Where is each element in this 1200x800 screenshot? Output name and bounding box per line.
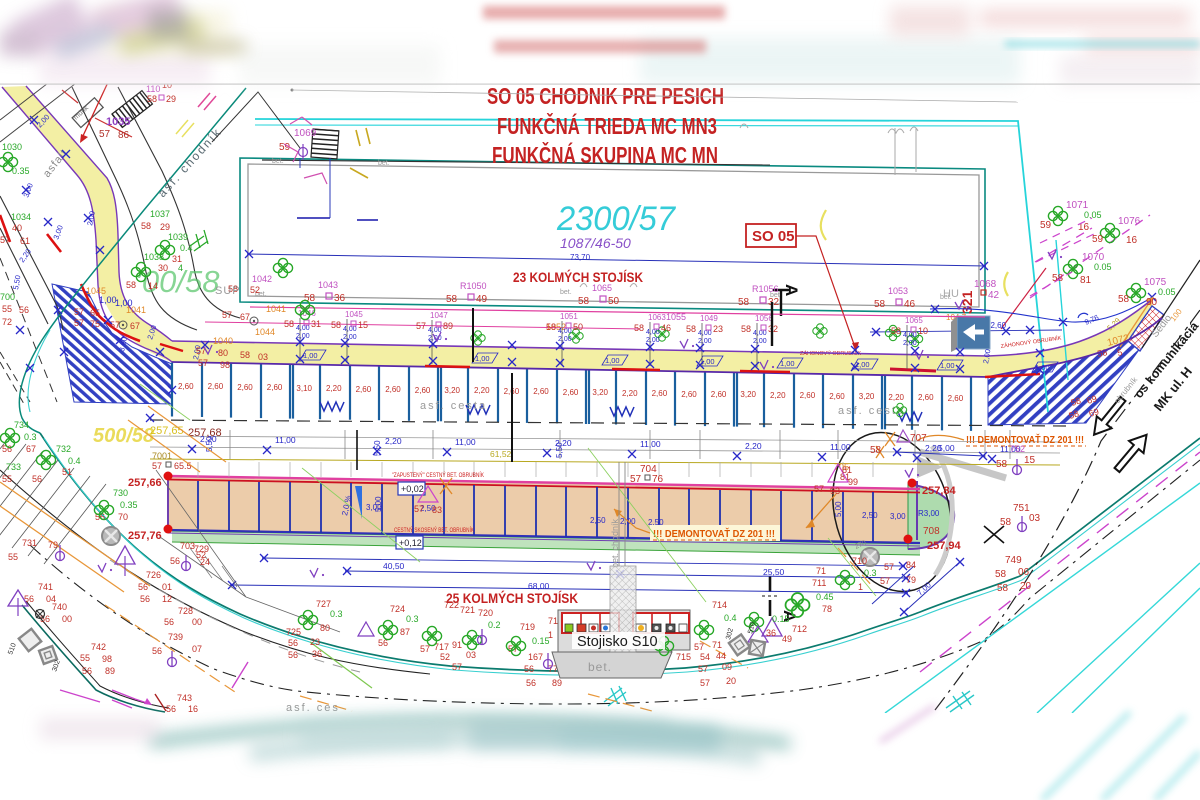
- svg-text:2,50: 2,50: [862, 511, 878, 520]
- svg-text:1069: 1069: [294, 128, 317, 139]
- svg-text:739: 739: [168, 632, 183, 642]
- svg-text:80: 80: [218, 348, 228, 358]
- svg-text:56: 56: [164, 617, 174, 627]
- svg-text:10: 10: [918, 326, 928, 336]
- svg-text:58: 58: [147, 94, 157, 104]
- svg-text:bet.: bet.: [272, 158, 284, 165]
- svg-text:23: 23: [310, 637, 320, 647]
- svg-text:724: 724: [390, 604, 405, 614]
- svg-text:1087/46-50: 1087/46-50: [560, 235, 631, 251]
- svg-text:751: 751: [1013, 503, 1030, 514]
- svg-text:56: 56: [19, 305, 29, 315]
- svg-text:36: 36: [334, 293, 346, 304]
- svg-text:1,00: 1,00: [303, 351, 318, 360]
- svg-text:56: 56: [138, 582, 148, 592]
- svg-text:bet.: bet.: [560, 289, 572, 296]
- svg-text:SO 05: SO 05: [752, 228, 795, 245]
- svg-text:710: 710: [852, 556, 867, 566]
- svg-text:257,76: 257,76: [128, 530, 162, 542]
- svg-text:+0,02: +0,02: [401, 484, 424, 494]
- svg-text:56: 56: [82, 666, 92, 676]
- svg-text:79: 79: [906, 575, 916, 585]
- svg-text:4,00: 4,00: [698, 330, 712, 337]
- svg-text:55: 55: [80, 653, 90, 663]
- svg-text:89: 89: [443, 321, 453, 331]
- svg-text:67: 67: [240, 312, 250, 322]
- svg-text:16: 16: [188, 704, 198, 714]
- svg-text:bet.: bet.: [378, 160, 390, 167]
- svg-text:725: 725: [286, 627, 301, 637]
- svg-text:70: 70: [118, 512, 128, 522]
- svg-text:1056: 1056: [755, 314, 773, 323]
- svg-text:56: 56: [152, 646, 162, 656]
- svg-text:65: 65: [90, 308, 100, 318]
- svg-text:57: 57: [222, 310, 232, 320]
- svg-text:58: 58: [634, 323, 644, 333]
- svg-text:R3,00: R3,00: [918, 509, 940, 518]
- svg-text:87: 87: [400, 627, 410, 637]
- svg-text:0.3: 0.3: [330, 609, 343, 619]
- svg-text:2,60: 2,60: [533, 387, 549, 396]
- svg-text:79: 79: [48, 540, 58, 550]
- svg-text:58: 58: [331, 320, 341, 330]
- svg-text:asf. ces: asf. ces: [286, 702, 340, 714]
- svg-text:3,20: 3,20: [740, 390, 756, 399]
- svg-text:84: 84: [906, 560, 916, 570]
- svg-text:78: 78: [822, 604, 832, 614]
- svg-text:1: 1: [548, 630, 553, 640]
- svg-text:2,60: 2,60: [918, 393, 934, 402]
- svg-text:58: 58: [141, 221, 151, 231]
- svg-text:0.3: 0.3: [406, 614, 419, 624]
- svg-text:57: 57: [420, 644, 430, 654]
- svg-text:57: 57: [880, 576, 890, 586]
- svg-text:2,00: 2,00: [753, 338, 767, 345]
- svg-text:1055: 1055: [666, 312, 686, 322]
- svg-text:36: 36: [766, 628, 776, 638]
- svg-text:50: 50: [608, 296, 620, 307]
- svg-text:09: 09: [722, 662, 732, 672]
- svg-text:730: 730: [113, 488, 128, 498]
- svg-text:1063: 1063: [648, 313, 666, 322]
- svg-text:0.3: 0.3: [864, 568, 877, 578]
- svg-text:2,20: 2,20: [474, 386, 490, 395]
- svg-text:83: 83: [432, 505, 442, 515]
- svg-text:3,20: 3,20: [444, 386, 460, 395]
- svg-text:06: 06: [1018, 567, 1030, 578]
- svg-text:12: 12: [162, 594, 172, 604]
- svg-text:56: 56: [2, 444, 12, 454]
- svg-text:71: 71: [816, 566, 826, 576]
- svg-text:500/58: 500/58: [93, 425, 155, 447]
- svg-text:03: 03: [466, 650, 476, 660]
- svg-text:1047: 1047: [430, 311, 448, 320]
- svg-text:2,20: 2,20: [326, 384, 342, 393]
- svg-text:2,60: 2,60: [267, 383, 283, 392]
- svg-text:1: 1: [858, 582, 863, 592]
- svg-text:2,00: 2,00: [646, 337, 660, 344]
- svg-text:2,60: 2,60: [800, 391, 816, 400]
- svg-text:707: 707: [910, 433, 927, 444]
- svg-text:57: 57: [630, 474, 642, 485]
- svg-text:58: 58: [741, 324, 751, 334]
- svg-text:99: 99: [848, 477, 858, 487]
- svg-text:733: 733: [6, 462, 21, 472]
- svg-text:56: 56: [170, 556, 180, 566]
- svg-text:0.35: 0.35: [12, 166, 30, 176]
- svg-text:58: 58: [304, 293, 316, 304]
- svg-text:2,00: 2,00: [343, 334, 357, 341]
- svg-text:31: 31: [311, 319, 321, 329]
- svg-text:01: 01: [162, 582, 172, 592]
- svg-text:0.15: 0.15: [772, 614, 790, 624]
- svg-text:0.4: 0.4: [724, 613, 737, 623]
- svg-text:56: 56: [526, 678, 536, 688]
- svg-text:61,52: 61,52: [490, 449, 512, 459]
- svg-text:57: 57: [0, 235, 10, 245]
- svg-text:1044: 1044: [255, 327, 275, 337]
- svg-text:57: 57: [416, 321, 426, 331]
- svg-text:1,00: 1,00: [780, 359, 795, 368]
- svg-text:56: 56: [32, 474, 42, 484]
- svg-text:58: 58: [1118, 294, 1130, 305]
- svg-text:4,00: 4,00: [558, 328, 572, 335]
- svg-text:67: 67: [130, 321, 140, 331]
- svg-text:1065: 1065: [905, 316, 923, 325]
- svg-text:11,00: 11,00: [275, 435, 296, 445]
- svg-text:72: 72: [2, 317, 12, 327]
- svg-text:2,20: 2,20: [888, 393, 904, 402]
- svg-text:52: 52: [440, 652, 450, 662]
- svg-text:732: 732: [56, 444, 71, 454]
- svg-text:58: 58: [686, 324, 696, 334]
- svg-text:4: 4: [178, 263, 183, 273]
- svg-text:2,00: 2,00: [558, 336, 572, 343]
- svg-text:58: 58: [1052, 273, 1064, 284]
- svg-text:257,84: 257,84: [922, 485, 957, 497]
- svg-text:55: 55: [8, 552, 18, 562]
- svg-text:57: 57: [99, 129, 111, 140]
- svg-text:0.4: 0.4: [180, 243, 193, 253]
- svg-text:HU: HU: [943, 288, 959, 300]
- svg-text:89: 89: [552, 678, 562, 688]
- svg-text:57: 57: [700, 678, 710, 688]
- svg-text:2,60: 2,60: [415, 386, 431, 395]
- svg-text:0.4: 0.4: [68, 456, 81, 466]
- svg-text:46: 46: [904, 299, 916, 310]
- svg-text:257,65: 257,65: [150, 425, 184, 437]
- svg-text:1053: 1053: [888, 286, 908, 296]
- svg-text:5,00: 5,00: [938, 443, 955, 453]
- svg-text:00: 00: [192, 617, 202, 627]
- svg-text:61: 61: [20, 236, 30, 246]
- svg-text:720: 720: [478, 608, 493, 618]
- svg-text:36: 36: [312, 649, 322, 659]
- svg-text:1034: 1034: [11, 212, 31, 222]
- svg-text:23 KOLMÝCH STOJÍSK: 23 KOLMÝCH STOJÍSK: [513, 268, 643, 285]
- svg-text:1040: 1040: [213, 336, 233, 346]
- svg-text:1051: 1051: [560, 312, 578, 321]
- svg-text:"ZAPUSTENÝ" CESTNÝ BET. OBRUBN: "ZAPUSTENÝ" CESTNÝ BET. OBRUBNÍK: [392, 470, 484, 479]
- svg-text:A: A: [782, 284, 801, 296]
- svg-text:0.05: 0.05: [1094, 262, 1112, 272]
- svg-text:752: 752: [1010, 444, 1025, 454]
- svg-text:57: 57: [698, 664, 708, 674]
- svg-text:2,60: 2,60: [948, 394, 964, 403]
- svg-text:25 KOLMÝCH STOJÍSK: 25 KOLMÝCH STOJÍSK: [446, 589, 578, 606]
- svg-text:98: 98: [220, 360, 230, 370]
- svg-text:1049: 1049: [700, 314, 718, 323]
- svg-text:749: 749: [1005, 555, 1022, 566]
- svg-text:CESTNÝ SKOSENÝ BET. OBRUBNÍK: CESTNÝ SKOSENÝ BET. OBRUBNÍK: [394, 525, 474, 534]
- svg-text:58: 58: [126, 280, 136, 290]
- svg-text:20: 20: [1020, 581, 1032, 592]
- svg-text:167: 167: [528, 652, 543, 662]
- svg-text:731: 731: [22, 538, 37, 548]
- svg-text:58: 58: [870, 445, 882, 456]
- svg-text:46: 46: [661, 323, 671, 333]
- svg-text:14: 14: [148, 281, 158, 291]
- svg-text:110: 110: [146, 84, 160, 94]
- svg-text:03: 03: [258, 352, 268, 362]
- svg-text:52: 52: [250, 285, 260, 295]
- svg-text:23: 23: [713, 324, 723, 334]
- svg-text:2,60: 2,60: [356, 385, 372, 394]
- svg-text:1045: 1045: [345, 310, 363, 319]
- svg-text:58: 58: [996, 459, 1008, 470]
- svg-text:2,20: 2,20: [385, 436, 402, 446]
- svg-text:58: 58: [446, 294, 458, 305]
- svg-text:3,10: 3,10: [296, 384, 312, 393]
- svg-text:3,00: 3,00: [890, 512, 906, 521]
- svg-text:1076: 1076: [1118, 216, 1141, 227]
- svg-text:81: 81: [842, 465, 852, 475]
- svg-text:2,60: 2,60: [208, 382, 224, 391]
- svg-text:15: 15: [1024, 455, 1036, 466]
- svg-text:3,20: 3,20: [592, 388, 608, 397]
- svg-text:75: 75: [90, 319, 100, 329]
- svg-text:4,00: 4,00: [753, 330, 767, 337]
- svg-text:4,00: 4,00: [428, 327, 442, 334]
- svg-text:2,00: 2,00: [903, 340, 917, 347]
- svg-text:726: 726: [146, 570, 161, 580]
- svg-text:714: 714: [712, 600, 727, 610]
- svg-text:58: 58: [891, 326, 901, 336]
- svg-text:57: 57: [694, 642, 704, 652]
- svg-text:58: 58: [546, 322, 556, 332]
- svg-text:2,20: 2,20: [770, 391, 786, 400]
- svg-text:76: 76: [652, 474, 664, 485]
- svg-text:728: 728: [178, 606, 193, 616]
- svg-text:57: 57: [452, 662, 462, 672]
- svg-text:1,00: 1,00: [115, 298, 133, 308]
- svg-text:03: 03: [1029, 513, 1041, 524]
- svg-text:722: 722: [444, 600, 459, 610]
- svg-text:1041: 1041: [266, 304, 286, 314]
- svg-text:42: 42: [988, 290, 1000, 301]
- svg-text:56: 56: [524, 664, 534, 674]
- svg-text:742: 742: [91, 642, 106, 652]
- svg-text:2,60: 2,60: [563, 388, 579, 397]
- svg-text:asf. cesta: asf. cesta: [420, 400, 487, 412]
- svg-text:FUNKČNÁ TRIEDA MC MN3: FUNKČNÁ TRIEDA MC MN3: [497, 112, 717, 139]
- svg-text:0.05: 0.05: [1084, 210, 1102, 220]
- svg-text:59: 59: [1040, 220, 1052, 231]
- svg-text:741: 741: [38, 582, 53, 592]
- svg-text:56: 56: [288, 650, 298, 660]
- svg-text:58: 58: [1000, 517, 1012, 528]
- svg-text:R1050: R1050: [460, 281, 487, 291]
- svg-text:4,00: 4,00: [296, 325, 310, 332]
- svg-text:58: 58: [284, 319, 294, 329]
- svg-text:7001: 7001: [152, 451, 172, 461]
- svg-text:2,60: 2,60: [385, 385, 401, 394]
- svg-text:58: 58: [578, 296, 590, 307]
- svg-text:1030: 1030: [2, 142, 22, 152]
- svg-text:719: 719: [520, 622, 535, 632]
- svg-text:712: 712: [792, 624, 807, 634]
- svg-text:1,00: 1,00: [475, 354, 490, 363]
- svg-text:2,60: 2,60: [711, 390, 727, 399]
- svg-text:727: 727: [316, 599, 331, 609]
- svg-text:1065: 1065: [592, 283, 612, 293]
- svg-text:56: 56: [140, 594, 150, 604]
- svg-text:58: 58: [874, 299, 886, 310]
- svg-text:Stojisko S10: Stojisko S10: [577, 634, 658, 650]
- svg-text:708: 708: [923, 526, 940, 537]
- svg-text:FUNKČNÁ SKUPINA MC MN: FUNKČNÁ SKUPINA MC MN: [492, 141, 718, 168]
- svg-text:98: 98: [102, 654, 112, 664]
- svg-text:56: 56: [288, 638, 298, 648]
- svg-text:2,60: 2,60: [178, 382, 194, 391]
- svg-text:711: 711: [812, 578, 826, 588]
- svg-text:57: 57: [152, 461, 162, 471]
- svg-text:bet. chodník: bet. chodník: [610, 518, 620, 568]
- svg-text:50: 50: [573, 322, 583, 332]
- svg-text:721: 721: [460, 605, 475, 615]
- svg-text:49: 49: [782, 634, 792, 644]
- svg-text:bet.: bet.: [588, 660, 612, 674]
- svg-text:1037: 1037: [150, 209, 170, 219]
- svg-text:73,70: 73,70: [570, 253, 591, 262]
- svg-text:257,94: 257,94: [927, 540, 962, 552]
- svg-text:49: 49: [476, 294, 488, 305]
- svg-text:R1056: R1056: [752, 284, 779, 294]
- svg-text:58: 58: [240, 350, 250, 360]
- svg-text:!!! DEMONTOVAŤ DZ 201 !!!: !!! DEMONTOVAŤ DZ 201 !!!: [653, 527, 775, 540]
- svg-text:32: 32: [768, 297, 780, 308]
- svg-text:0.05: 0.05: [1158, 287, 1176, 297]
- svg-text:4,00: 4,00: [646, 329, 660, 336]
- svg-text:1039: 1039: [168, 232, 188, 242]
- svg-text:57: 57: [414, 504, 424, 514]
- svg-text:2,20: 2,20: [622, 389, 638, 398]
- svg-text:2,20: 2,20: [745, 441, 762, 451]
- svg-text:1035: 1035: [106, 116, 130, 128]
- svg-text:81: 81: [1080, 275, 1092, 286]
- svg-text:2,60: 2,60: [652, 389, 668, 398]
- svg-text:58: 58: [995, 569, 1007, 580]
- svg-text:715: 715: [676, 652, 691, 662]
- svg-text:SUP: SUP: [215, 285, 241, 297]
- svg-text:743: 743: [177, 693, 192, 703]
- svg-text:2,60: 2,60: [237, 383, 253, 392]
- svg-text:40: 40: [12, 223, 22, 233]
- svg-text:59: 59: [1092, 234, 1104, 245]
- svg-text:80: 80: [320, 623, 330, 633]
- svg-text:0.2: 0.2: [488, 620, 501, 630]
- svg-text:SO 05 CHODNIK PRE PESICH: SO 05 CHODNIK PRE PESICH: [487, 83, 724, 109]
- svg-text:30: 30: [158, 263, 168, 273]
- svg-text:2300/57: 2300/57: [556, 200, 676, 238]
- svg-text:54: 54: [700, 652, 710, 662]
- svg-text:67: 67: [26, 444, 36, 454]
- svg-text:15: 15: [358, 320, 368, 330]
- svg-text:1,00: 1,00: [99, 295, 117, 305]
- svg-text:4,00: 4,00: [343, 326, 357, 333]
- svg-text:16: 16: [1126, 235, 1138, 246]
- svg-text:700: 700: [0, 292, 15, 302]
- svg-text:1042: 1042: [252, 274, 272, 284]
- svg-text:89: 89: [105, 666, 115, 676]
- svg-text:55: 55: [2, 474, 12, 484]
- svg-text:44: 44: [716, 651, 726, 661]
- svg-text:20: 20: [726, 676, 736, 686]
- svg-text:2,00: 2,00: [698, 338, 712, 345]
- svg-text:11,00: 11,00: [640, 439, 661, 449]
- svg-text:740: 740: [52, 602, 67, 612]
- svg-text:1043: 1043: [318, 280, 338, 290]
- svg-text:57: 57: [198, 358, 208, 368]
- svg-text:57: 57: [74, 307, 84, 317]
- svg-text:51: 51: [62, 467, 72, 477]
- svg-text:257,68: 257,68: [188, 427, 222, 439]
- svg-text:1068: 1068: [974, 279, 997, 290]
- svg-text:71: 71: [712, 640, 722, 650]
- svg-text:07: 07: [192, 644, 202, 654]
- svg-text:+0,12: +0,12: [399, 538, 422, 548]
- svg-text:703: 703: [180, 541, 195, 551]
- svg-text:0.15: 0.15: [532, 636, 550, 646]
- svg-text:4,00: 4,00: [903, 332, 917, 339]
- svg-text:3,00: 3,00: [366, 503, 382, 512]
- svg-text:65.5: 65.5: [174, 461, 192, 471]
- svg-text:2,60: 2,60: [681, 390, 697, 399]
- svg-text:11,00: 11,00: [830, 442, 851, 452]
- svg-text:29: 29: [160, 222, 170, 232]
- svg-text:57: 57: [884, 562, 894, 572]
- svg-text:56: 56: [166, 704, 176, 714]
- svg-text:0.35: 0.35: [120, 500, 138, 510]
- svg-text:86: 86: [118, 130, 130, 141]
- svg-text:0.3: 0.3: [24, 432, 37, 442]
- svg-text:58: 58: [738, 297, 750, 308]
- svg-text:91: 91: [452, 640, 462, 650]
- svg-text:58: 58: [997, 583, 1009, 594]
- svg-text:57: 57: [814, 484, 824, 494]
- svg-text:1,00: 1,00: [940, 361, 955, 370]
- svg-text:2,60: 2,60: [829, 392, 845, 401]
- svg-text:52: 52: [196, 550, 206, 560]
- svg-text:59: 59: [279, 142, 291, 153]
- svg-text:3,20: 3,20: [859, 392, 875, 401]
- svg-text:40,50: 40,50: [383, 561, 405, 571]
- svg-text:00: 00: [62, 614, 72, 624]
- svg-text:29: 29: [166, 94, 176, 104]
- svg-text:257,66: 257,66: [128, 477, 162, 489]
- svg-text:734: 734: [14, 420, 29, 430]
- svg-text:2,50: 2,50: [590, 516, 606, 525]
